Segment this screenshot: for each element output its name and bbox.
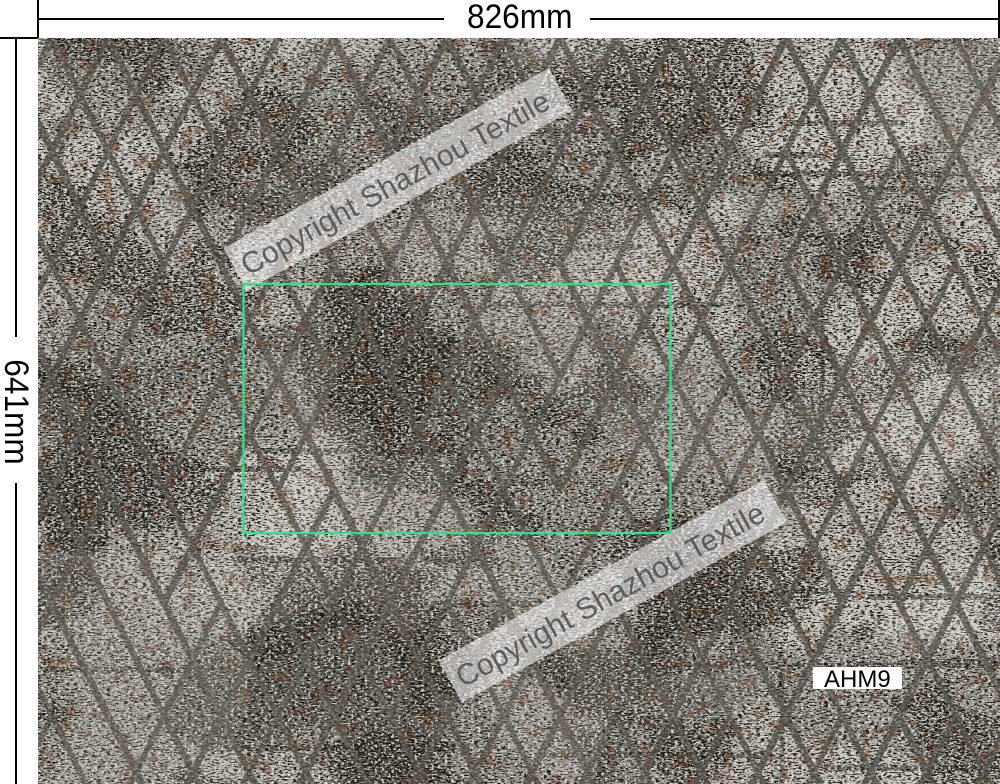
svg-text:AHM9: AHM9 [824, 666, 891, 693]
